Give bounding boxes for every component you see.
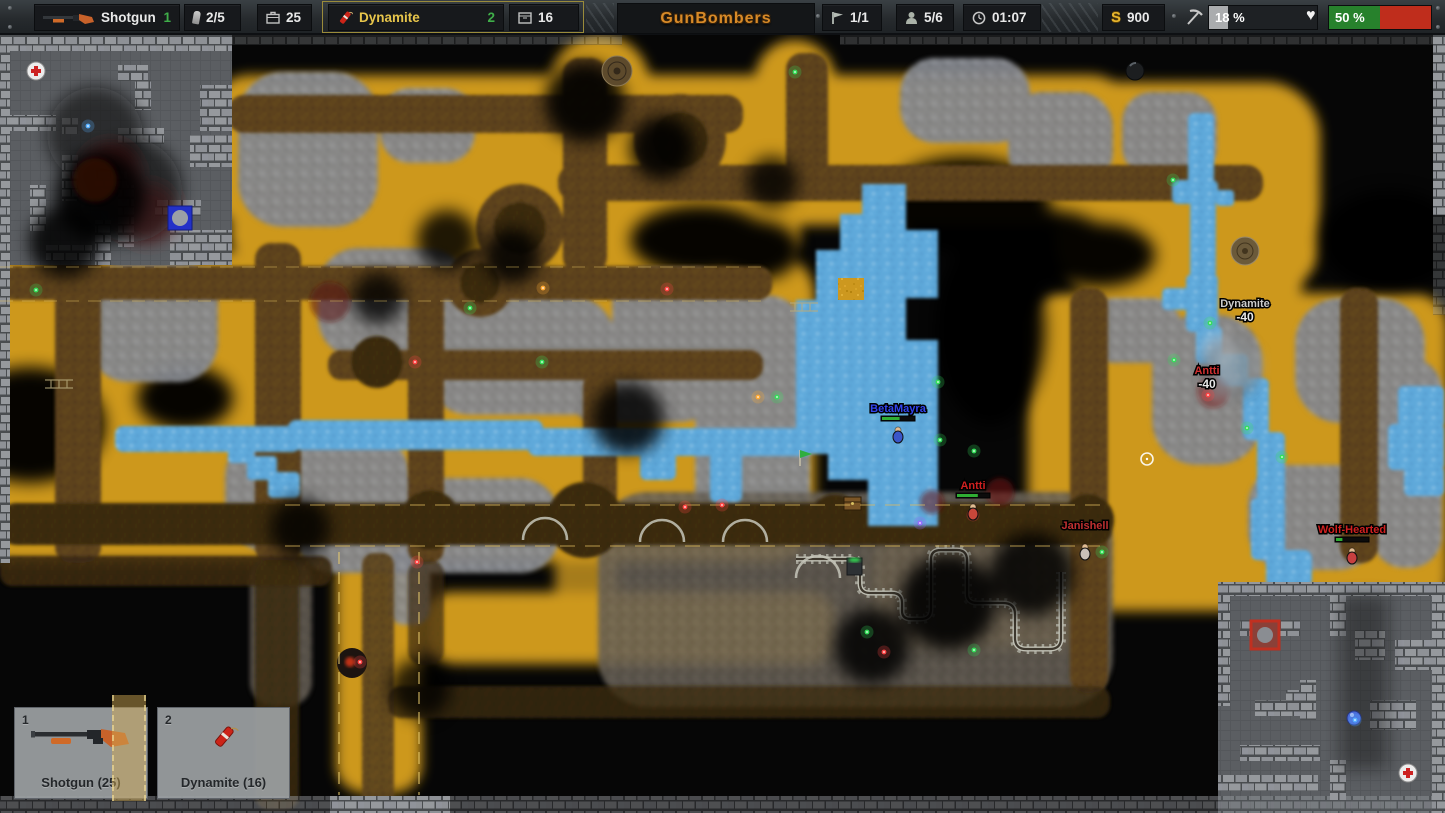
- dynamite-icon: [158, 720, 289, 754]
- lake-island: [838, 278, 864, 300]
- svg-text:Dynamite: Dynamite: [1220, 298, 1270, 310]
- svg-text:Antti: Antti: [1194, 365, 1219, 377]
- screw-icon: [8, 6, 12, 10]
- heart-icon: ♥: [1306, 8, 1316, 24]
- timer-box: 01:07: [963, 4, 1041, 31]
- logo-panel: GunBombers: [617, 3, 815, 34]
- health-percent-label: 50 %: [1335, 10, 1365, 25]
- players-count: 5/6: [924, 10, 943, 25]
- ammo-clip-box: 2/5: [184, 4, 241, 31]
- player-icon: [905, 11, 918, 25]
- match-timer: 01:07: [992, 10, 1027, 25]
- game-screen: BetaMayraAnttiJanishellWolf-Hearted Dyna…: [0, 0, 1445, 813]
- top-hud-bar: Shotgun 1 2/5 25 Dynamite: [0, 0, 1445, 35]
- ammo-reserve-box: 25: [257, 4, 312, 31]
- money-box: S 900: [1102, 4, 1165, 31]
- ammo-reserve: 25: [286, 10, 301, 25]
- screw-icon: [1436, 6, 1440, 10]
- screw-icon: [816, 14, 820, 18]
- scratch-decor: [1042, 3, 1098, 32]
- weapon-slot-dynamite[interactable]: 2 Dynamite (16): [157, 707, 290, 799]
- svg-text:Antti: Antti: [960, 480, 985, 492]
- dynamite-reserve-box: 16: [509, 4, 579, 31]
- shotgun-icon: [43, 11, 95, 25]
- weapon-panel-shotgun[interactable]: Shotgun 1: [34, 4, 180, 31]
- players-box: 5/6: [896, 4, 954, 31]
- bullet-icon: [192, 10, 201, 24]
- ammo-count: 2/5: [206, 10, 225, 25]
- game-logo: GunBombers: [660, 10, 771, 28]
- health-bar: 50 %: [1328, 5, 1432, 30]
- health-bar-red: [1380, 6, 1431, 29]
- drill-progress-bar: 18 %: [1208, 5, 1318, 30]
- screw-icon: [8, 25, 12, 29]
- flags-box: 1/1: [822, 4, 882, 31]
- weapon-slot-number: 1: [163, 10, 171, 25]
- screw-icon: [1172, 14, 1176, 18]
- svg-text:-40: -40: [1236, 310, 1254, 324]
- drill-percent-label: 18 %: [1215, 10, 1245, 25]
- svg-text:Wolf-Hearted: Wolf-Hearted: [1318, 524, 1386, 536]
- selected-slot-number: 2: [487, 10, 495, 25]
- pickaxe-icon: [1184, 8, 1204, 28]
- svg-text:-40: -40: [1198, 377, 1216, 391]
- svg-text:Janishell: Janishell: [1061, 520, 1108, 532]
- weapon-panel-dynamite[interactable]: Dynamite 2: [328, 4, 504, 31]
- dynamite-reserve: 16: [538, 10, 553, 25]
- slot-label: Dynamite (16): [158, 775, 289, 790]
- clock-icon: [972, 11, 986, 25]
- svg-text:BetaMayra: BetaMayra: [870, 403, 927, 415]
- money-amount: 900: [1127, 10, 1150, 25]
- money-icon: S: [1111, 9, 1121, 26]
- lit-tunnel-glow-overlay: [112, 695, 146, 801]
- dynamite-icon: [337, 10, 353, 26]
- screw-icon: [1436, 25, 1440, 29]
- scratch-decor: [586, 3, 614, 32]
- base-bottom-right: [1218, 582, 1445, 813]
- ammo-crate-icon: [518, 11, 532, 24]
- weapon-name: Shotgun: [101, 10, 156, 25]
- selected-weapon-name: Dynamite: [359, 10, 420, 25]
- game-map[interactable]: BetaMayraAnttiJanishellWolf-Hearted Dyna…: [0, 0, 1445, 813]
- ammo-crate-icon: [266, 11, 280, 24]
- flags-count: 1/1: [850, 10, 869, 25]
- flag-icon: [831, 11, 844, 25]
